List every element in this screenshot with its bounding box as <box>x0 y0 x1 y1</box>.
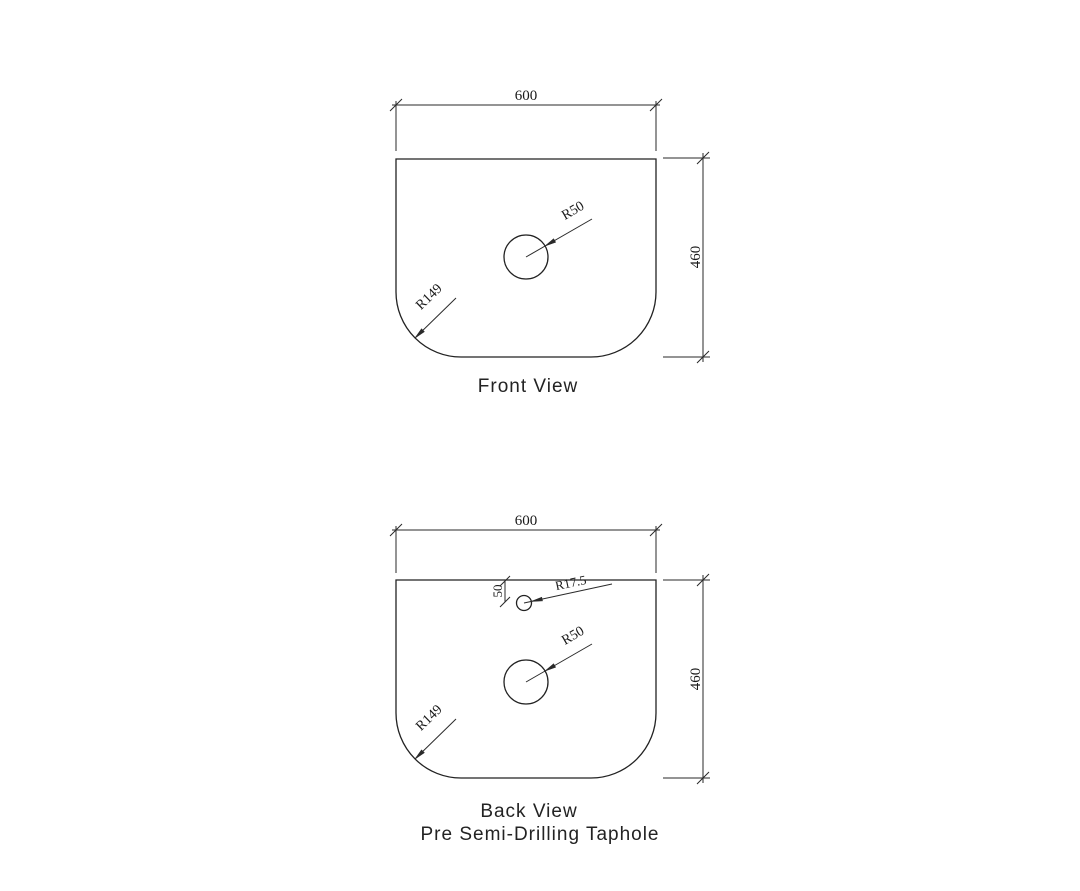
front-view: 600 R50 R149 460 Front View <box>390 88 710 397</box>
front-hole-radius-label: R50 <box>559 199 587 224</box>
back-view-subtitle: Pre Semi-Drilling Taphole <box>420 824 659 845</box>
back-width-dimension-lines <box>390 524 662 573</box>
back-height-value: 460 <box>688 668 704 691</box>
back-corner-radius-arrowhead <box>415 750 424 759</box>
front-hole-radius-arrowhead <box>545 239 556 246</box>
back-view: 600 R17.5 50 R50 R149 <box>390 513 710 845</box>
front-height-value: 460 <box>688 246 704 269</box>
front-width-dimension: 600 <box>390 88 662 151</box>
back-hole-radius-label: R50 <box>559 624 587 649</box>
front-corner-radius-label: R149 <box>413 281 445 313</box>
front-hole-radius-callout: R50 <box>526 199 592 257</box>
front-width-dimension-lines <box>390 99 662 151</box>
front-panel-outline <box>396 159 656 357</box>
back-hole-radius-callout: R50 <box>526 624 592 682</box>
technical-drawing-canvas: 600 R50 R149 460 Front View 600 <box>0 0 1080 891</box>
back-taphole-radius-arrowhead <box>531 597 542 601</box>
front-width-value: 600 <box>515 88 538 104</box>
back-width-dimension: 600 <box>390 513 662 573</box>
back-corner-radius-label: R149 <box>413 702 445 734</box>
drawing-sheet: 600 R50 R149 460 Front View 600 <box>0 0 1080 891</box>
back-taphole-offset-value: 50 <box>490 585 505 598</box>
back-width-value: 600 <box>515 513 538 529</box>
back-taphole-radius-callout: R17.5 <box>524 572 612 603</box>
back-view-title: Back View <box>480 801 577 822</box>
front-corner-radius-callout: R149 <box>413 281 456 338</box>
back-height-dimension: 460 <box>663 574 710 784</box>
back-hole-radius-arrowhead <box>545 664 556 671</box>
back-corner-radius-callout: R149 <box>413 702 456 759</box>
front-height-dimension: 460 <box>663 152 710 363</box>
front-corner-radius-arrowhead <box>415 329 424 338</box>
front-view-title: Front View <box>478 376 578 397</box>
